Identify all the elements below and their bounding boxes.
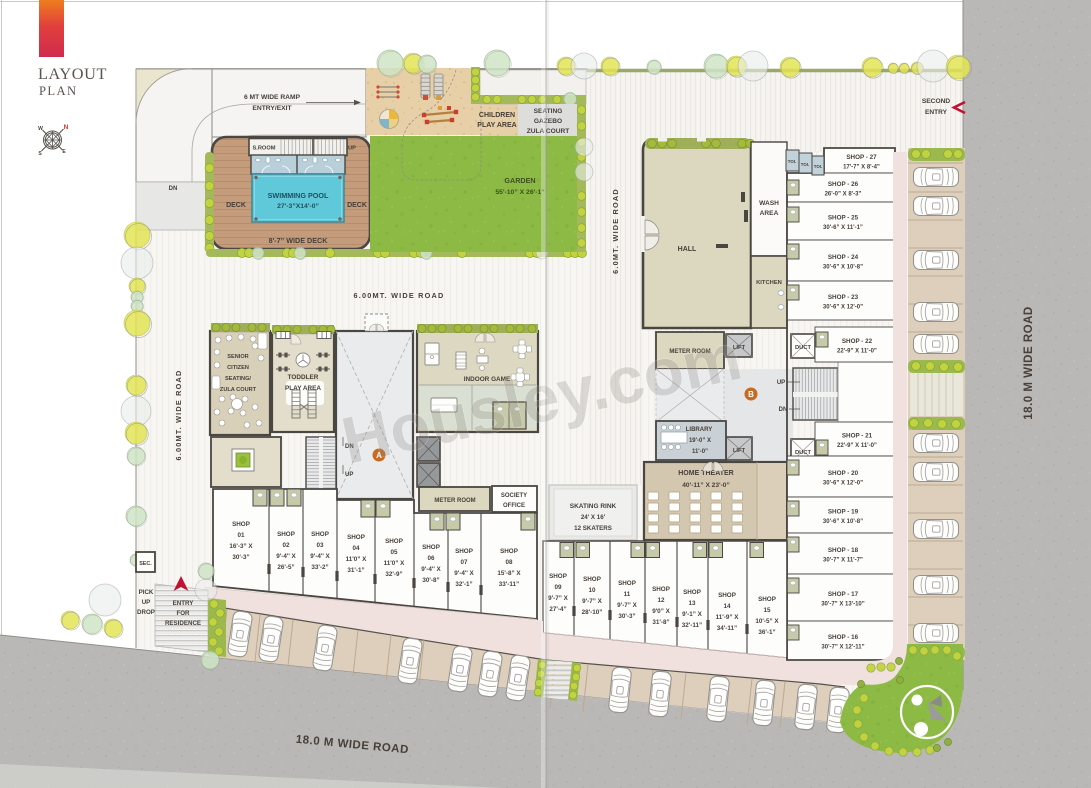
svg-text:03: 03 [316,542,324,549]
svg-text:06: 06 [427,555,435,562]
svg-text:TOI.: TOI. [814,164,822,169]
svg-text:9'-4'' X: 9'-4'' X [310,553,330,560]
svg-text:16'-3” X: 16'-3” X [229,543,253,550]
svg-text:19'-0” X: 19'-0” X [689,438,711,444]
svg-text:11'0” X: 11'0” X [384,560,406,567]
svg-text:15'-8” X: 15'-8” X [497,570,521,577]
svg-text:SHOP - 17: SHOP - 17 [828,591,859,598]
svg-text:07: 07 [460,559,468,566]
svg-text:11'0” X: 11'0” X [346,556,368,563]
svg-text:18.0 M WIDE ROAD: 18.0 M WIDE ROAD [1023,306,1035,419]
svg-text:SHOP: SHOP [277,531,295,538]
svg-text:UP: UP [777,380,785,386]
svg-text:6.00MT. WIDE ROAD: 6.00MT. WIDE ROAD [174,370,183,461]
svg-text:SHOP: SHOP [232,521,250,528]
svg-text:8'-7” WIDE DECK: 8'-7” WIDE DECK [269,236,329,245]
svg-text:30'-6” X 10'-8”: 30'-6” X 10'-8” [823,519,863,525]
svg-text:CHILDREN: CHILDREN [479,112,515,119]
svg-text:32'-1”: 32'-1” [455,581,472,588]
svg-text:SHOP: SHOP [385,538,403,545]
svg-text:S.ROOM: S.ROOM [252,146,275,152]
svg-text:SHOP - 27: SHOP - 27 [846,154,877,161]
svg-text:ENTRY: ENTRY [173,600,195,607]
svg-text:9'-4'' X: 9'-4'' X [276,553,296,560]
svg-text:32'-11”: 32'-11” [682,622,702,629]
svg-text:30'-7” X 13'-10”: 30'-7” X 13'-10” [821,602,865,608]
svg-text:14: 14 [723,603,731,610]
svg-text:30'-6” X 10'-8”: 30'-6” X 10'-8” [823,265,863,271]
svg-text:KITCHEN: KITCHEN [756,280,782,286]
svg-text:11'-0”: 11'-0” [692,449,708,455]
svg-text:PLAN: PLAN [39,84,78,98]
svg-text:13: 13 [688,600,696,607]
svg-text:24' X 16': 24' X 16' [581,514,606,521]
svg-text:30'-3”: 30'-3” [232,554,249,561]
svg-text:SEC.: SEC. [139,561,152,567]
svg-text:9'-7” X: 9'-7” X [582,598,602,605]
svg-text:TOI.: TOI. [801,162,809,167]
svg-text:SEATING/: SEATING/ [225,376,251,382]
svg-text:SHOP: SHOP [758,596,776,603]
svg-text:30'-6” X 12'-0”: 30'-6” X 12'-0” [823,305,863,311]
svg-text:AREA: AREA [760,210,779,217]
svg-text:55'-10” X 26'-1”: 55'-10” X 26'-1” [495,189,544,196]
svg-text:34'-11”: 34'-11” [717,625,737,632]
svg-text:08: 08 [505,559,513,566]
svg-text:SHOP - 26: SHOP - 26 [828,181,859,188]
svg-text:10'-5” X: 10'-5” X [755,618,779,625]
svg-text:04: 04 [352,545,360,552]
svg-text:B: B [748,390,754,399]
svg-text:SECOND: SECOND [922,98,950,105]
svg-text:SOCIETY: SOCIETY [501,493,527,499]
svg-text:WASH: WASH [759,200,779,207]
svg-text:N: N [64,124,69,131]
svg-text:17'-7” X 8'-4”: 17'-7” X 8'-4” [843,165,880,171]
svg-text:SHOP - 18: SHOP - 18 [828,547,859,554]
svg-text:30'-7” X 12'-11”: 30'-7” X 12'-11” [821,645,864,651]
svg-text:30'-6” X 12'-0”: 30'-6” X 12'-0” [823,481,863,487]
svg-text:SHOP: SHOP [455,548,473,555]
svg-text:RESIDENCE: RESIDENCE [165,620,201,627]
svg-text:30'-7” X 11'-7”: 30'-7” X 11'-7” [823,558,863,564]
svg-text:SHOP - 25: SHOP - 25 [828,215,859,222]
svg-text:PLAY AREA: PLAY AREA [285,385,321,392]
svg-text:DN: DN [169,186,178,192]
svg-text:6 MT WIDE RAMP: 6 MT WIDE RAMP [244,94,301,101]
svg-text:PLAY AREA: PLAY AREA [477,122,516,129]
svg-text:01: 01 [237,532,245,539]
svg-text:SHOP: SHOP [652,586,670,593]
svg-text:DECK: DECK [226,202,246,209]
svg-text:30'-3”: 30'-3” [618,613,635,620]
svg-text:6.00MT. WIDE ROAD: 6.00MT. WIDE ROAD [354,291,445,300]
svg-text:LAYOUT: LAYOUT [38,64,107,83]
svg-text:UP: UP [348,146,356,152]
svg-text:33'-11”: 33'-11” [499,581,519,588]
svg-text:22'-9” X 11'-0”: 22'-9” X 11'-0” [837,443,877,449]
svg-text:SHOP: SHOP [347,534,365,541]
svg-text:05: 05 [390,549,398,556]
svg-text:33'-2”: 33'-2” [311,564,328,571]
svg-text:HALL: HALL [678,246,697,253]
svg-text:W: W [38,126,43,132]
svg-text:SHOP - 23: SHOP - 23 [828,294,859,301]
svg-text:SHOP: SHOP [500,548,518,555]
svg-text:SHOP: SHOP [618,580,636,587]
svg-text:SHOP: SHOP [583,576,601,583]
svg-text:CITIZEN: CITIZEN [227,365,249,371]
svg-text:30'-8”: 30'-8” [422,577,439,584]
svg-text:22'-9” X 11'-0”: 22'-9” X 11'-0” [837,349,877,355]
svg-text:ZULA COURT: ZULA COURT [220,387,257,393]
svg-text:32'-9”: 32'-9” [385,571,402,578]
svg-text:26'-0” X 8'-3”: 26'-0” X 8'-3” [825,192,862,198]
svg-text:SWIMMING POOL: SWIMMING POOL [268,191,329,200]
svg-text:OFFICE: OFFICE [503,503,525,509]
svg-text:SHOP: SHOP [718,592,736,599]
svg-text:27'-4”: 27'-4” [549,606,566,613]
svg-text:DN: DN [779,407,788,413]
svg-text:9'-1” X: 9'-1” X [682,611,702,618]
svg-text:15: 15 [763,607,771,614]
svg-text:02: 02 [282,542,290,549]
svg-text:SHOP - 19: SHOP - 19 [828,509,859,516]
svg-text:36'-1”: 36'-1” [758,629,775,636]
svg-text:TOI.: TOI. [788,159,796,164]
svg-text:TODDLER: TODDLER [288,374,319,381]
svg-text:9'-7” X: 9'-7” X [548,595,568,602]
svg-text:DUCT: DUCT [795,345,812,351]
svg-text:11: 11 [624,591,631,598]
svg-text:31'-1”: 31'-1” [347,567,364,574]
svg-text:9'0” X: 9'0” X [652,608,670,615]
svg-text:ENTRY: ENTRY [925,109,948,116]
svg-text:40'-11” X 23'-0”: 40'-11” X 23'-0” [682,482,730,489]
svg-text:ENTRY/EXIT: ENTRY/EXIT [252,105,292,112]
svg-text:26'-5”: 26'-5” [277,564,294,571]
svg-text:SKATING RINK: SKATING RINK [570,503,617,510]
svg-text:12: 12 [657,597,665,604]
svg-text:SHOP - 16: SHOP - 16 [828,634,859,641]
svg-text:9'-4'' X: 9'-4'' X [421,566,441,573]
svg-text:28'-10”: 28'-10” [582,609,603,616]
svg-text:SHOP: SHOP [549,573,567,580]
svg-text:SHOP - 20: SHOP - 20 [828,470,859,477]
svg-text:10: 10 [588,587,596,594]
svg-text:GARDEN: GARDEN [504,176,535,185]
svg-text:SHOP: SHOP [422,544,440,551]
svg-text:DROP: DROP [137,609,155,616]
svg-text:SENIOR: SENIOR [227,354,248,360]
svg-text:30'-6” X 11'-1”: 30'-6” X 11'-1” [823,225,863,231]
svg-text:6.0MT. WIDE ROAD: 6.0MT. WIDE ROAD [611,188,620,274]
svg-text:LIFT: LIFT [733,448,746,454]
svg-text:PICK: PICK [139,589,154,596]
svg-text:27'-3”X14'-0”: 27'-3”X14'-0” [277,203,319,210]
svg-text:SHOP - 21: SHOP - 21 [842,433,873,440]
svg-text:SHOP - 22: SHOP - 22 [842,338,873,345]
svg-text:09: 09 [554,584,562,591]
svg-text:11'-9” X: 11'-9” X [716,614,740,621]
svg-text:SHOP: SHOP [311,531,329,538]
svg-text:9'-4'' X: 9'-4'' X [454,570,474,577]
svg-text:UP: UP [142,599,151,606]
svg-text:SHOP: SHOP [683,589,701,596]
svg-text:31'-8”: 31'-8” [652,619,669,626]
svg-text:LIBRARY: LIBRARY [686,427,712,433]
svg-text:METER ROOM: METER ROOM [434,498,475,504]
svg-text:FOR: FOR [176,610,190,617]
svg-text:DUCT: DUCT [795,450,812,456]
svg-text:12 SKATERS: 12 SKATERS [574,525,612,532]
svg-text:DECK: DECK [347,202,367,209]
svg-text:SHOP - 24: SHOP - 24 [828,254,859,261]
svg-text:9'-7” X: 9'-7” X [617,602,637,609]
